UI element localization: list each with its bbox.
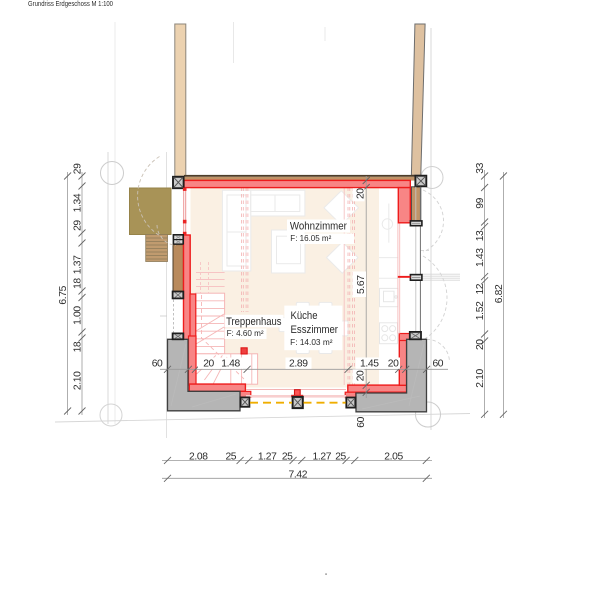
svg-text:2.10: 2.10 — [73, 371, 84, 390]
svg-text:60: 60 — [152, 358, 163, 369]
svg-text:F: 4.60 m²: F: 4.60 m² — [227, 329, 264, 338]
svg-text:1.43: 1.43 — [475, 248, 486, 267]
svg-text:1.45: 1.45 — [360, 358, 379, 369]
svg-text:20: 20 — [388, 358, 399, 369]
svg-text:1.48: 1.48 — [221, 358, 240, 369]
svg-text:60: 60 — [433, 358, 444, 369]
svg-text:1.52: 1.52 — [475, 301, 486, 320]
svg-text:6.75: 6.75 — [58, 285, 69, 304]
svg-text:1.27: 1.27 — [313, 451, 332, 462]
svg-text:25: 25 — [335, 451, 346, 462]
svg-text:1.34: 1.34 — [73, 193, 84, 212]
svg-text:1.37: 1.37 — [73, 255, 84, 274]
svg-text:Grundriss Erdgeschoss M 1:100: Grundriss Erdgeschoss M 1:100 — [28, 1, 113, 8]
svg-text:99: 99 — [475, 197, 486, 208]
svg-text:F: 14.03 m²: F: 14.03 m² — [290, 338, 333, 347]
svg-text:6.82: 6.82 — [494, 284, 505, 303]
svg-text:Esszimmer: Esszimmer — [291, 324, 339, 336]
svg-text:13: 13 — [475, 230, 486, 241]
svg-text:20: 20 — [475, 339, 486, 350]
svg-text:18: 18 — [73, 341, 84, 352]
svg-text:F: 16.05 m²: F: 16.05 m² — [290, 234, 331, 243]
svg-text:Treppenhaus: Treppenhaus — [226, 316, 282, 328]
svg-text:33: 33 — [475, 162, 486, 173]
svg-text:2.08: 2.08 — [189, 451, 208, 462]
svg-text:25: 25 — [282, 451, 293, 462]
svg-text:Wohnzimmer: Wohnzimmer — [290, 221, 347, 233]
svg-text:2.10: 2.10 — [475, 369, 486, 388]
svg-text:25: 25 — [226, 451, 237, 462]
svg-text:29: 29 — [73, 220, 84, 231]
svg-text:2.89: 2.89 — [289, 358, 308, 369]
svg-text:Küche: Küche — [291, 310, 318, 322]
svg-text:5.67: 5.67 — [356, 275, 367, 294]
svg-text:7.42: 7.42 — [289, 469, 308, 480]
svg-text:20: 20 — [355, 188, 366, 199]
svg-text:20: 20 — [355, 370, 366, 381]
svg-text:18: 18 — [73, 278, 84, 289]
svg-text:1.27: 1.27 — [258, 451, 277, 462]
svg-text:29: 29 — [73, 163, 84, 174]
svg-text:2.05: 2.05 — [384, 451, 403, 462]
svg-text:60: 60 — [356, 416, 367, 427]
svg-text:20: 20 — [203, 358, 214, 369]
svg-text:12: 12 — [475, 283, 486, 294]
svg-text:1.00: 1.00 — [73, 306, 84, 325]
